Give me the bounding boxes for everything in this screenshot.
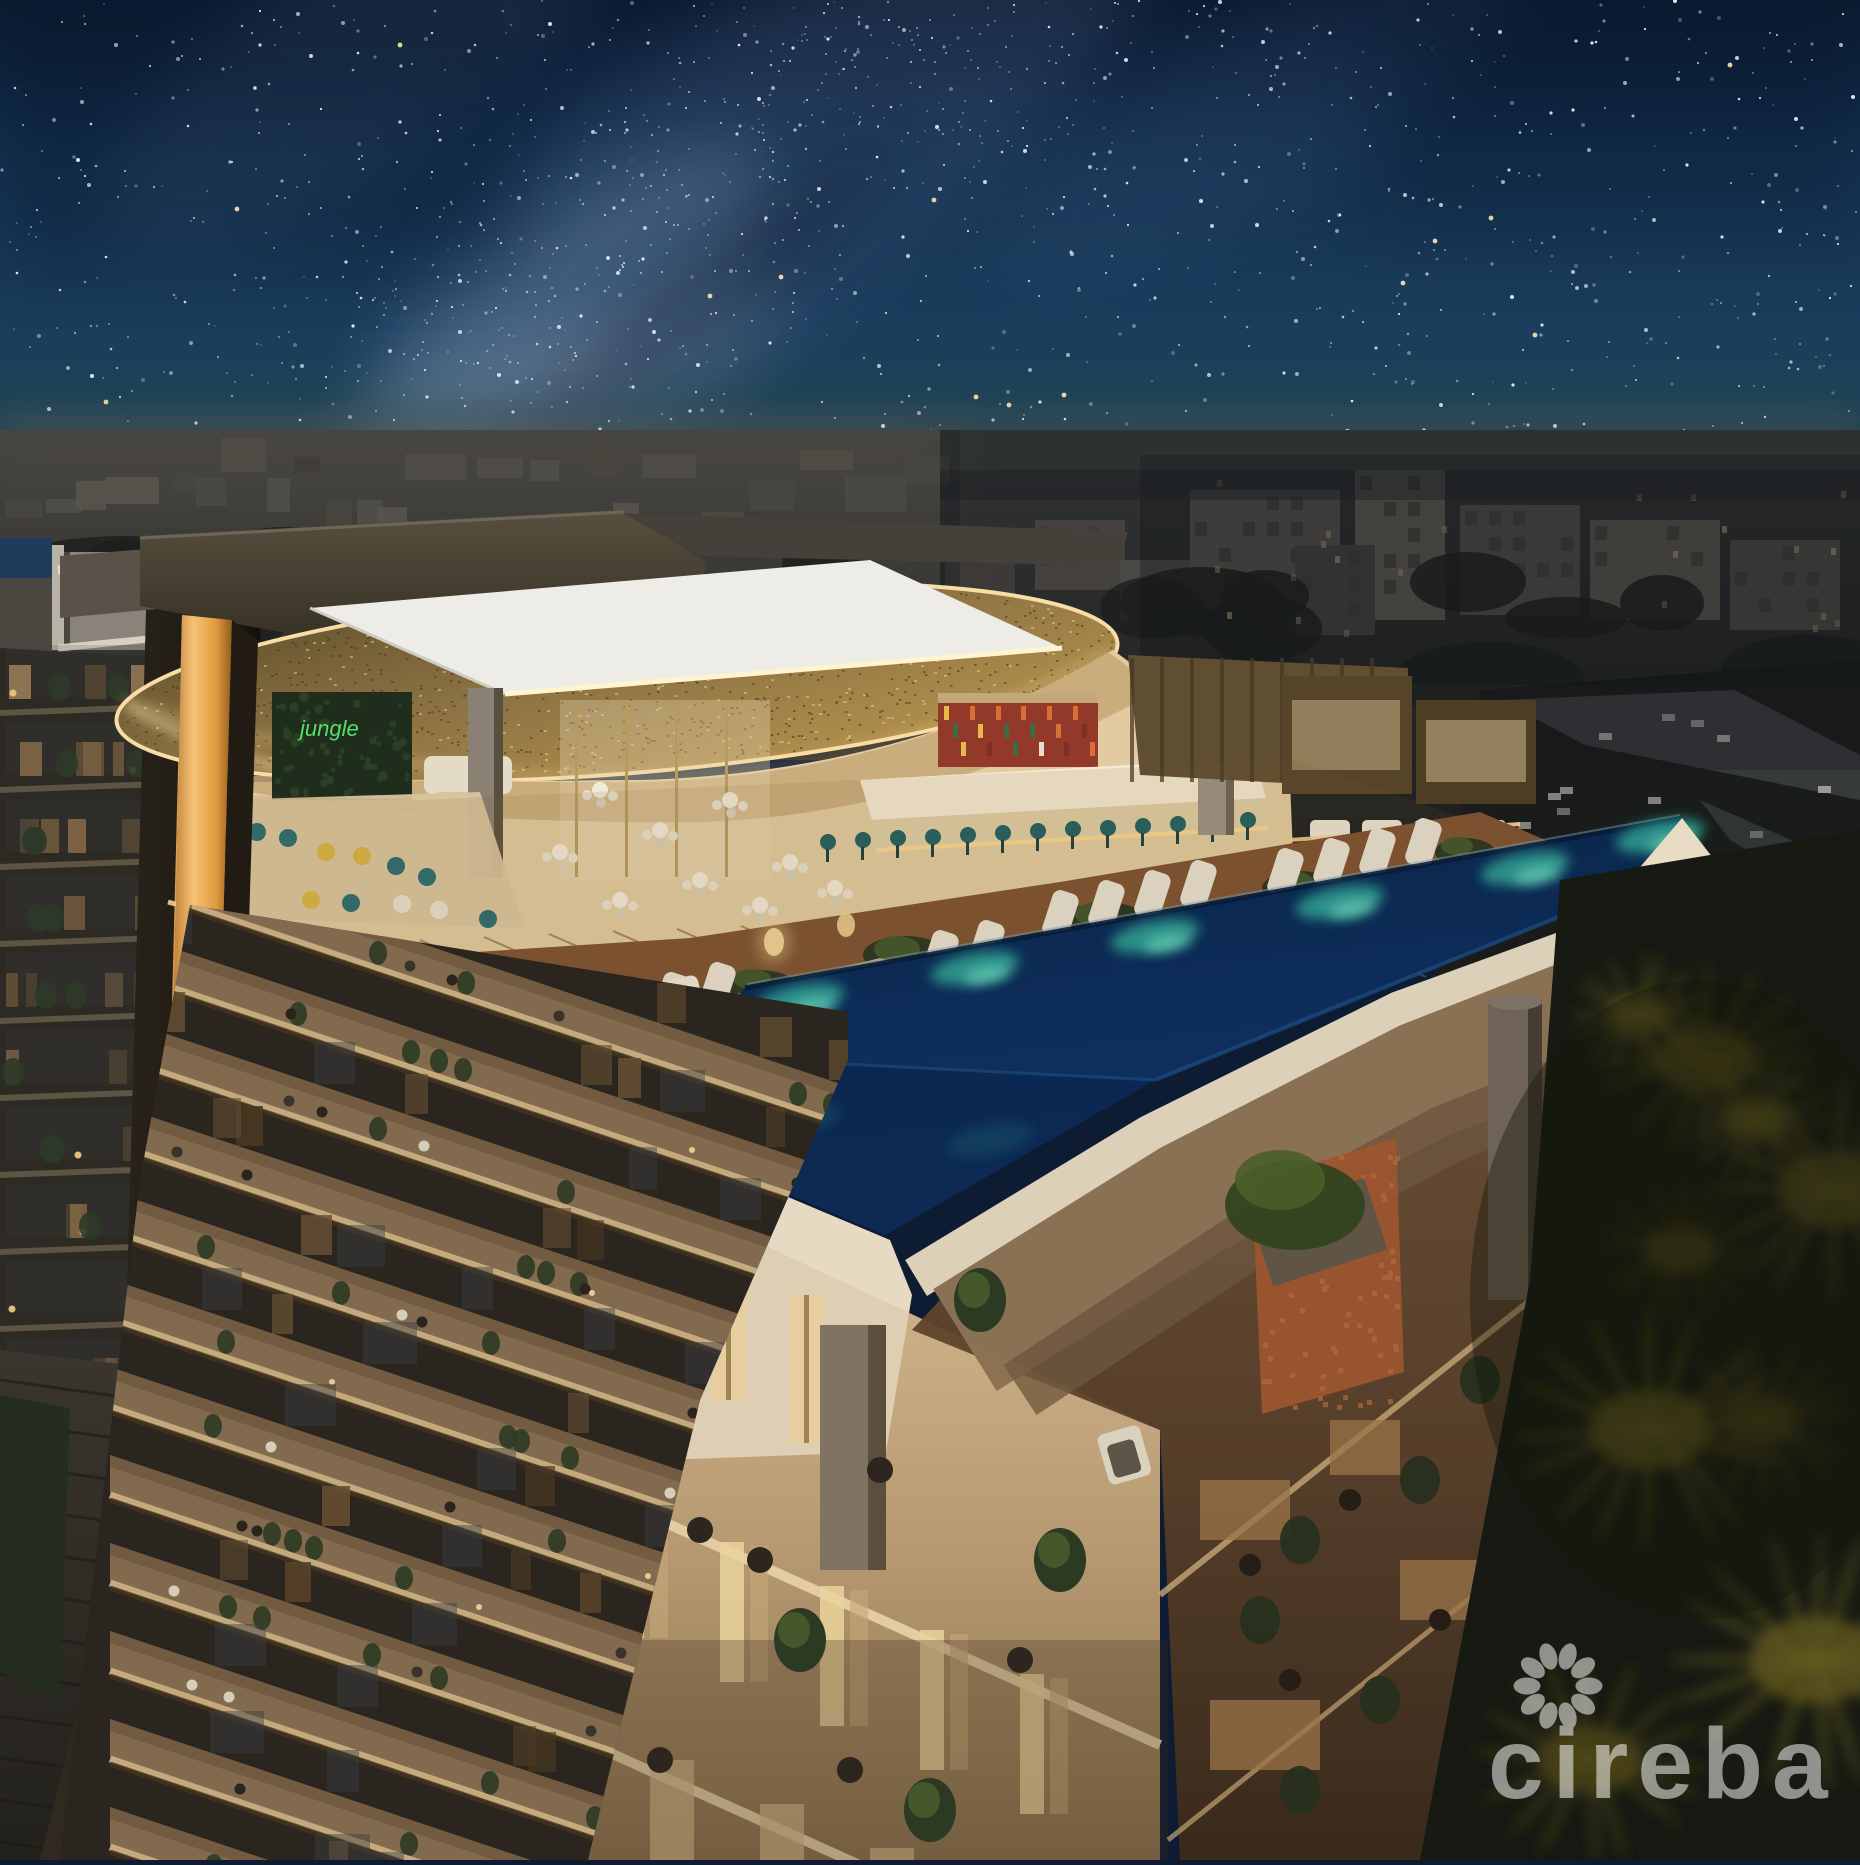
svg-text:jungle: jungle — [297, 716, 359, 741]
svg-text:cireba: cireba — [1488, 1708, 1837, 1820]
